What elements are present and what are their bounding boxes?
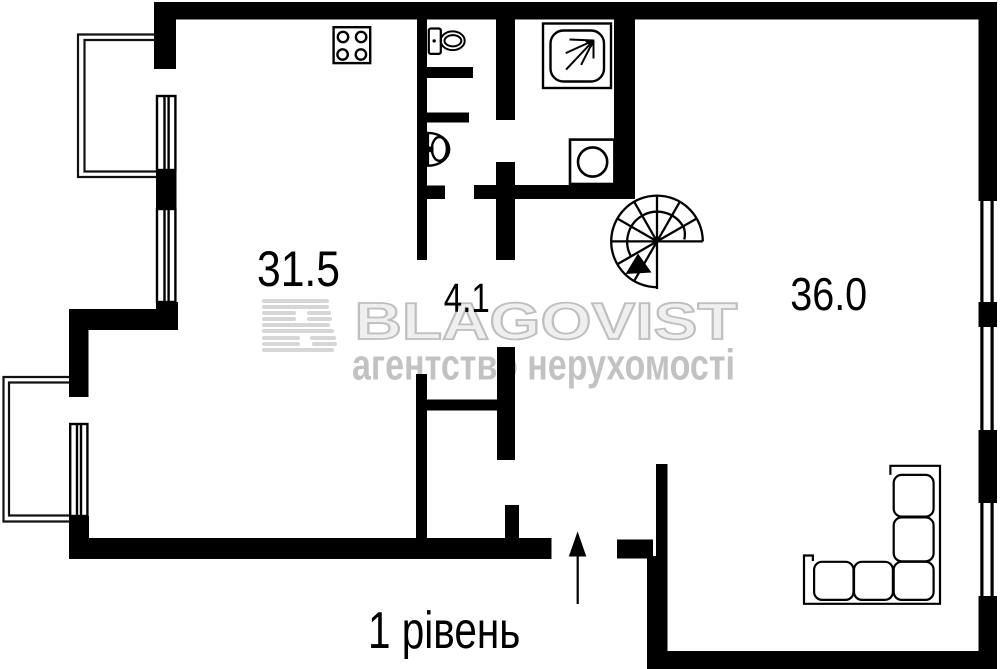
svg-text:31.5: 31.5 — [257, 241, 340, 297]
svg-text:36.0: 36.0 — [790, 268, 867, 320]
svg-text:4.1: 4.1 — [444, 275, 490, 321]
svg-text:1 рівень: 1 рівень — [368, 602, 520, 660]
svg-text:агентство нерухомості: агентство нерухомості — [352, 341, 735, 390]
